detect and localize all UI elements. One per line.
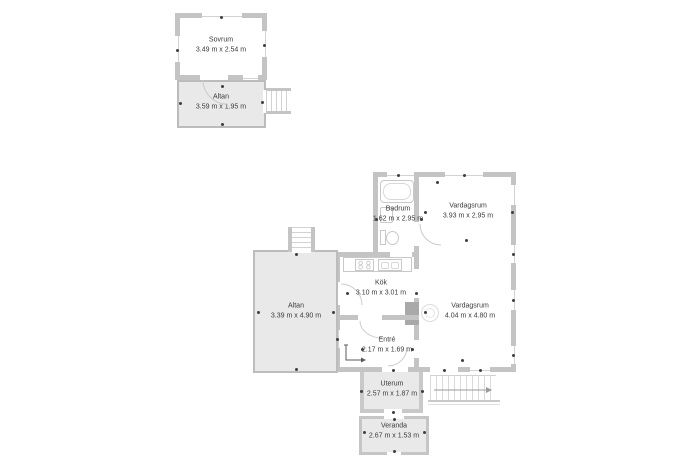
garden-stairs-edge-2 bbox=[428, 404, 500, 405]
floor-plan: Sovrum 3.49 m x 2.54 m Altan 3.59 m x 1.… bbox=[0, 0, 690, 460]
measure-dot bbox=[332, 311, 335, 314]
entrance-arrow-line bbox=[344, 345, 361, 360]
bathtub bbox=[380, 180, 414, 203]
measure-dot bbox=[221, 123, 224, 126]
room-dims: 3.93 m x 2.95 m bbox=[443, 211, 493, 221]
measure-dot bbox=[220, 16, 223, 19]
measure-dot bbox=[512, 253, 515, 256]
measure-dot bbox=[336, 338, 339, 341]
measure-dot bbox=[360, 390, 363, 393]
toilet-bowl bbox=[386, 231, 399, 245]
entre-wall-north-b bbox=[382, 315, 419, 320]
room-name: Entré bbox=[362, 336, 412, 346]
measure-dot bbox=[511, 211, 514, 214]
measure-dot bbox=[512, 299, 515, 302]
room-name: Veranda bbox=[369, 422, 419, 432]
entre-wall-north-a bbox=[340, 315, 358, 320]
kitchen-sink-basin-1 bbox=[381, 262, 389, 269]
measure-dot bbox=[512, 354, 515, 357]
room-label-veranda: Veranda 2.67 m x 1.53 m bbox=[369, 422, 419, 441]
measure-dot bbox=[415, 292, 418, 295]
room-name: Kök bbox=[356, 279, 406, 289]
room-dims: 2.17 m x 1.69 m bbox=[362, 345, 412, 355]
bathtub-inner bbox=[383, 183, 411, 200]
room-label-vardagsrum-upper: Vardagsrum 3.93 m x 2.95 m bbox=[443, 202, 493, 221]
measure-dot bbox=[392, 411, 395, 414]
room-label-entre: Entré 2.17 m x 1.69 m bbox=[362, 336, 412, 355]
badrum-door-east-opening bbox=[414, 222, 419, 246]
measure-dot bbox=[363, 431, 366, 434]
room-label-badrum: Badrum 1.62 m x 2.95 m bbox=[373, 205, 423, 224]
room-label-uterum: Uterum 2.57 m x 1.87 m bbox=[367, 380, 417, 399]
room-label-altan-main: Altan 3.39 m x 4.90 m bbox=[271, 302, 321, 321]
measure-dot bbox=[295, 253, 298, 256]
kok-wall-east-c bbox=[414, 358, 419, 367]
measure-dot bbox=[179, 102, 182, 105]
room-label-kok: Kök 3.10 m x 3.01 m bbox=[356, 279, 406, 298]
measure-dot bbox=[257, 311, 260, 314]
room-name: Uterum bbox=[367, 380, 417, 390]
room-dims: 2.67 m x 1.53 m bbox=[369, 431, 419, 441]
measure-dot bbox=[421, 390, 424, 393]
room-dims: 3.59 m x 1.95 m bbox=[196, 102, 246, 112]
measure-dot bbox=[465, 239, 468, 242]
kok-wall-east-a bbox=[414, 257, 419, 269]
stove-burners bbox=[356, 260, 373, 270]
room-dims: 3.10 m x 3.01 m bbox=[356, 288, 406, 298]
measure-dot bbox=[479, 369, 482, 372]
kitchen-sink-basin-2 bbox=[391, 262, 399, 269]
room-label-altan-guest: Altan 3.59 m x 1.95 m bbox=[196, 93, 246, 112]
guesthouse-stairs bbox=[266, 88, 291, 114]
stove bbox=[355, 259, 374, 271]
measure-dot bbox=[346, 292, 349, 295]
measure-dot bbox=[463, 174, 466, 177]
measure-dot bbox=[261, 101, 264, 104]
measure-dot bbox=[263, 44, 266, 47]
room-dims: 3.49 m x 2.54 m bbox=[196, 45, 246, 55]
garden-stairs bbox=[430, 375, 496, 401]
room-dims: 3.39 m x 4.90 m bbox=[271, 311, 321, 321]
room-name: Sovrum bbox=[196, 36, 246, 46]
chimney bbox=[405, 302, 419, 325]
measure-dot bbox=[397, 174, 400, 177]
measure-dot bbox=[424, 211, 427, 214]
measure-dot bbox=[461, 359, 464, 362]
room-name: Badrum bbox=[373, 205, 423, 215]
kitchen-sink bbox=[378, 259, 402, 271]
measure-dot bbox=[393, 450, 396, 453]
room-label-vardagsrum-lower: Vardagsrum 4.04 m x 4.80 m bbox=[445, 302, 495, 321]
room-name: Altan bbox=[271, 302, 321, 312]
room-name: Vardagsrum bbox=[445, 302, 495, 312]
badrum-door-swing bbox=[420, 224, 441, 245]
entrance-arrowhead bbox=[361, 358, 366, 363]
room-label-sovrum: Sovrum 3.49 m x 2.54 m bbox=[196, 36, 246, 55]
measure-dot bbox=[221, 85, 224, 88]
measure-dot bbox=[176, 49, 179, 52]
room-name: Vardagsrum bbox=[443, 202, 493, 212]
door-swing-overlay bbox=[0, 0, 690, 460]
measure-dot bbox=[436, 181, 439, 184]
vardagsrum-window-right-1 bbox=[511, 185, 516, 205]
measure-dot bbox=[424, 311, 427, 314]
measure-dot bbox=[423, 431, 426, 434]
badrum-window-top bbox=[387, 172, 414, 177]
room-name: Altan bbox=[196, 93, 246, 103]
garden-stairs-edge bbox=[428, 400, 500, 402]
room-dims: 1.62 m x 2.95 m bbox=[373, 214, 423, 224]
measure-dot bbox=[295, 368, 298, 371]
room-dims: 4.04 m x 4.80 m bbox=[445, 311, 495, 321]
altan-stairs bbox=[288, 227, 315, 252]
measure-dot bbox=[443, 369, 446, 372]
room-dims: 2.57 m x 1.87 m bbox=[367, 389, 417, 399]
measure-dot bbox=[392, 369, 395, 372]
